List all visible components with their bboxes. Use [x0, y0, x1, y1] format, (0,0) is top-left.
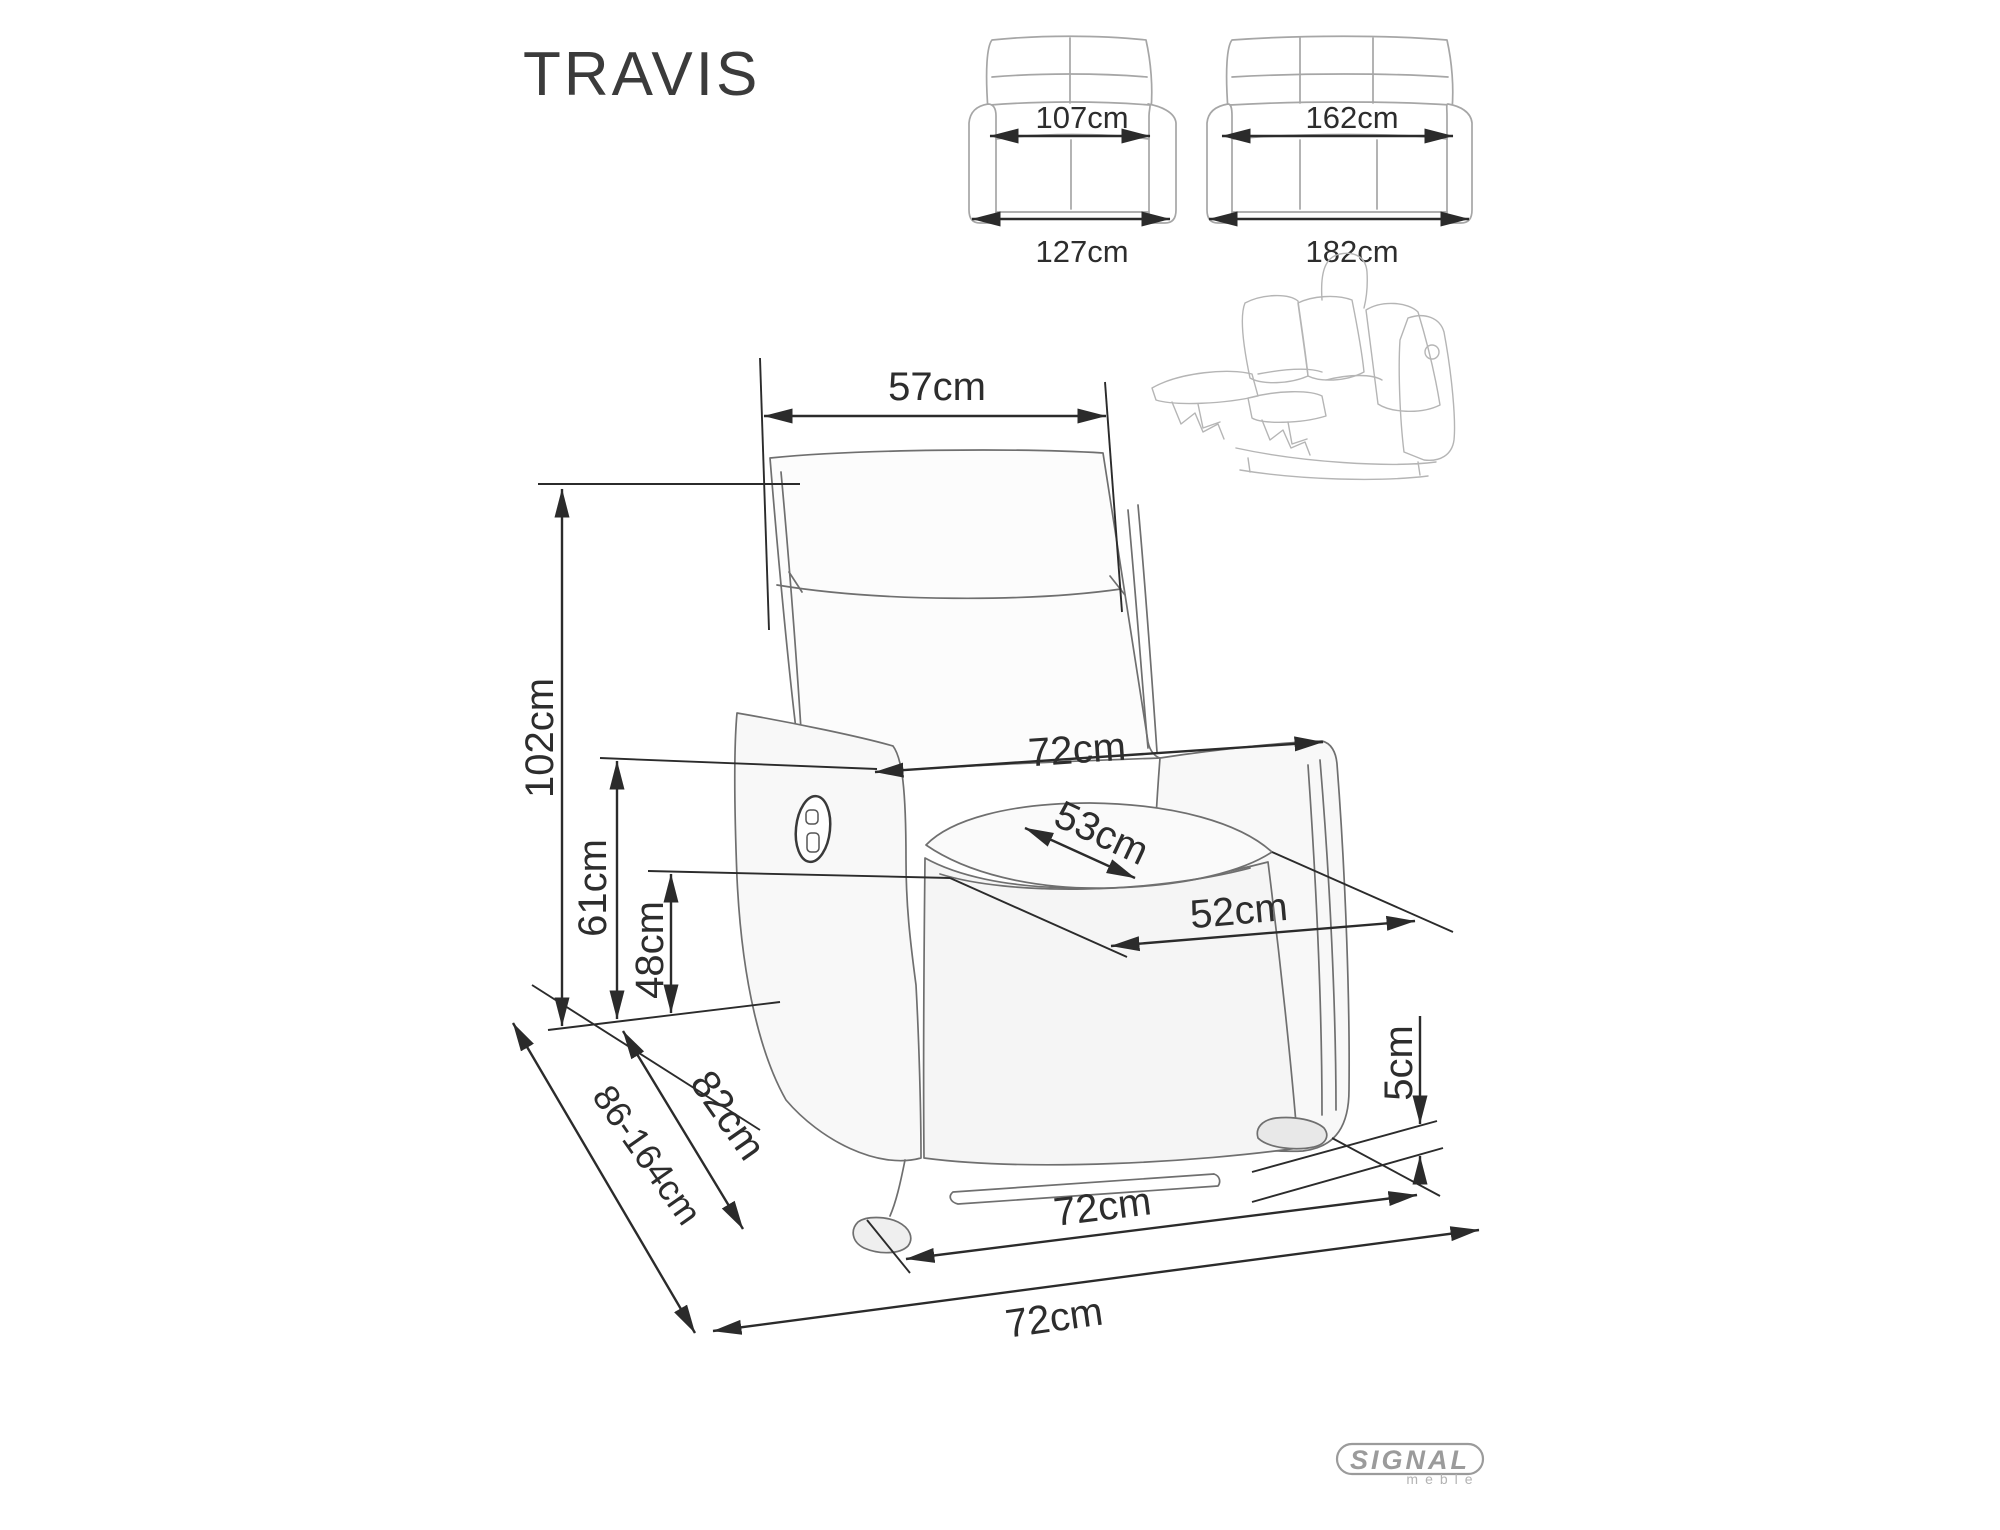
dimension-footprint-width: 72cm	[713, 1230, 1479, 1347]
dim-label-overall-width: 72cm	[1027, 725, 1128, 776]
sketch-front-left-foot	[853, 1218, 911, 1253]
logo-sub-text: meble	[1406, 1471, 1479, 1487]
product-dimension-sheet: TRAVIS 107cm 127cm 162cm 182cm	[0, 0, 2000, 1530]
extension-line	[548, 1002, 780, 1030]
diagram-canvas: TRAVIS 107cm 127cm 162cm 182cm	[0, 0, 2000, 1530]
dim-label-ground-clearance: 5cm	[1377, 1025, 1421, 1101]
sketch-line	[1248, 392, 1326, 423]
dim-label-backrest-width: 57cm	[888, 365, 986, 409]
sketch-line	[1207, 104, 1232, 223]
page-title: TRAVIS	[523, 40, 760, 109]
dim-label-seat-depth: 52cm	[1188, 885, 1289, 937]
extension-line	[1332, 1138, 1440, 1196]
armchair-sketch	[735, 450, 1349, 1253]
sketch-line	[890, 1160, 905, 1216]
dim-label-sofa3-outer: 182cm	[1305, 234, 1398, 269]
sketch-line	[1152, 371, 1258, 403]
dim-label-seat-height: 48cm	[628, 901, 672, 999]
sketch-line	[1447, 104, 1472, 223]
dim-label-armrest-height: 61cm	[571, 839, 615, 937]
sketch-line	[1399, 316, 1454, 461]
sketch-line	[1262, 420, 1310, 455]
sketch-backrest	[770, 450, 1160, 772]
reclined-sofa-sketch	[1152, 253, 1455, 479]
sketch-line	[1298, 296, 1364, 380]
dim-label-sofa2-inner: 107cm	[1035, 100, 1128, 135]
extension-line	[760, 358, 769, 630]
sketch-line	[1366, 303, 1440, 411]
brand-logo: SIGNAL meble	[1337, 1444, 1483, 1487]
sketch-line	[1425, 345, 1439, 359]
sketch-line	[969, 104, 996, 223]
dim-label-sofa3-inner: 162cm	[1305, 100, 1398, 135]
dim-label-footprint-width: 72cm	[1003, 1290, 1106, 1347]
sofa-three-seat-sketch: 162cm 182cm	[1207, 36, 1472, 269]
dim-label-sofa2-outer: 127cm	[1035, 234, 1128, 269]
dim-label-base-depth: 72cm	[1051, 1179, 1153, 1235]
dim-label-height: 102cm	[518, 678, 562, 798]
sketch-line	[1300, 140, 1377, 209]
sofa-two-seat-sketch: 107cm 127cm	[969, 36, 1176, 269]
dimension-depth-reclined: 86-164cm	[513, 1023, 710, 1333]
extension-line	[1252, 1148, 1443, 1202]
sketch-line	[1172, 402, 1224, 439]
sketch-line	[1227, 36, 1453, 110]
sketch-left-arm-panel	[735, 713, 921, 1161]
sketch-line	[1148, 104, 1176, 223]
